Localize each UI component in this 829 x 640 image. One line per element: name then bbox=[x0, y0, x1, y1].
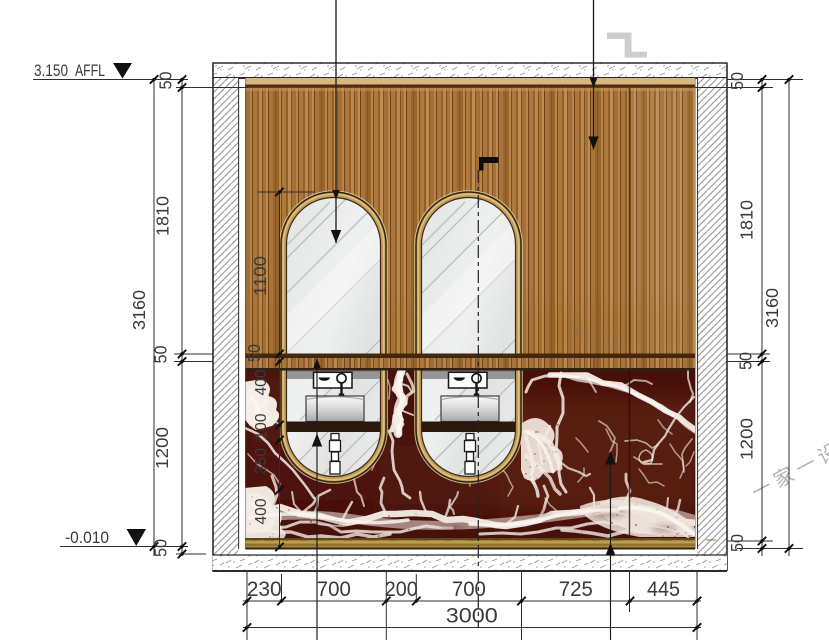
svg-text:350: 350 bbox=[253, 448, 270, 474]
svg-text:50: 50 bbox=[151, 539, 171, 557]
svg-text:50: 50 bbox=[736, 352, 756, 370]
svg-text:700: 700 bbox=[452, 578, 486, 601]
svg-text:50: 50 bbox=[727, 534, 747, 552]
svg-text:50: 50 bbox=[156, 71, 176, 89]
svg-text:1200: 1200 bbox=[737, 418, 757, 460]
svg-text:AFFL: AFFL bbox=[75, 61, 105, 80]
svg-text:1200: 1200 bbox=[152, 427, 172, 469]
svg-text:725: 725 bbox=[559, 578, 593, 601]
svg-text:100: 100 bbox=[253, 413, 270, 439]
svg-text:400: 400 bbox=[253, 498, 270, 524]
svg-text:1810: 1810 bbox=[737, 200, 757, 240]
svg-text:200: 200 bbox=[385, 578, 418, 601]
svg-text:1100: 1100 bbox=[250, 256, 270, 296]
svg-text:3160: 3160 bbox=[762, 288, 782, 328]
svg-text:-0.010: -0.010 bbox=[65, 528, 109, 547]
svg-text:50: 50 bbox=[151, 345, 171, 363]
svg-text:230: 230 bbox=[247, 578, 282, 601]
svg-text:50: 50 bbox=[727, 72, 747, 90]
svg-text:3.150: 3.150 bbox=[34, 61, 68, 80]
svg-text:1810: 1810 bbox=[153, 196, 173, 236]
svg-text:700: 700 bbox=[317, 578, 351, 601]
svg-text:400: 400 bbox=[253, 369, 270, 395]
svg-text:50: 50 bbox=[244, 344, 264, 362]
svg-text:3160: 3160 bbox=[129, 290, 149, 330]
svg-text:3000: 3000 bbox=[446, 605, 498, 628]
svg-text:445: 445 bbox=[647, 578, 680, 601]
